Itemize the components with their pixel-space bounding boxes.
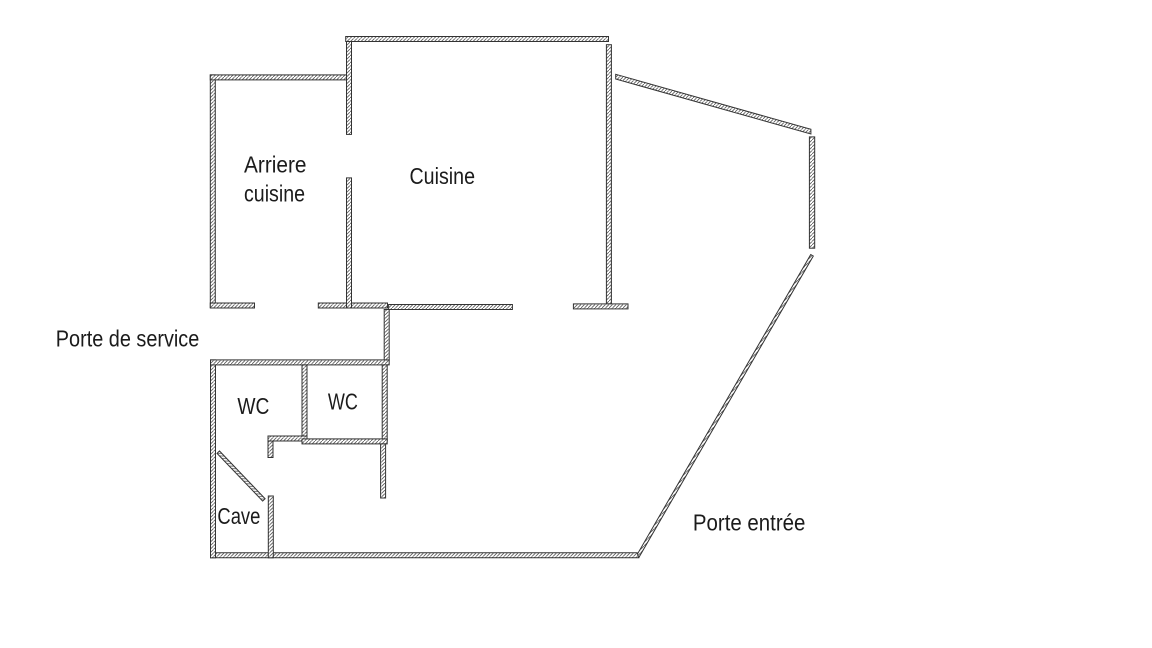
svg-text:Cave: Cave bbox=[217, 503, 260, 529]
svg-text:Porte entrée: Porte entrée bbox=[693, 510, 806, 536]
svg-text:cuisine: cuisine bbox=[244, 180, 305, 206]
svg-text:Cuisine: Cuisine bbox=[410, 163, 476, 189]
svg-text:Arriere: Arriere bbox=[244, 152, 307, 178]
svg-text:Porte de service: Porte de service bbox=[56, 326, 200, 352]
svg-text:WC: WC bbox=[328, 389, 358, 415]
svg-text:WC: WC bbox=[237, 393, 269, 419]
